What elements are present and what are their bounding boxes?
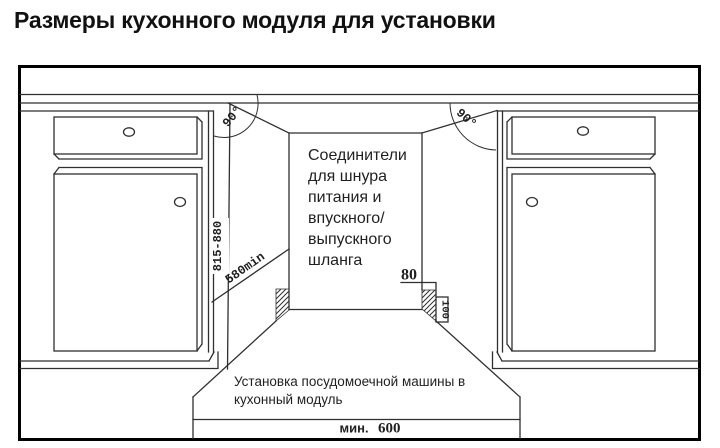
caption-line: Установка посудомоечной машины в: [234, 374, 465, 389]
caption-line: кухонный модуль: [234, 392, 343, 407]
niche-note-line: для шнура: [308, 168, 387, 185]
min-width-word: мин.: [339, 421, 368, 436]
niche-note-line: выпускного: [308, 231, 392, 248]
hose-offset-label: 80: [401, 267, 417, 284]
niche-note-line: шланга: [308, 252, 362, 269]
min-width-label: мин. 600: [339, 420, 400, 437]
height-range-label: 815-880: [211, 221, 225, 271]
min-width-value: 600: [378, 421, 401, 437]
niche-note-line: питания и: [308, 189, 381, 206]
niche-note-line: впускного/: [308, 210, 385, 227]
installation-diagram: 815-880 580min 80 100 90° 90° Соединител…: [0, 0, 720, 448]
hose-pocket-height-label: 100: [439, 300, 451, 319]
niche-note-line: Соединители: [308, 147, 407, 164]
